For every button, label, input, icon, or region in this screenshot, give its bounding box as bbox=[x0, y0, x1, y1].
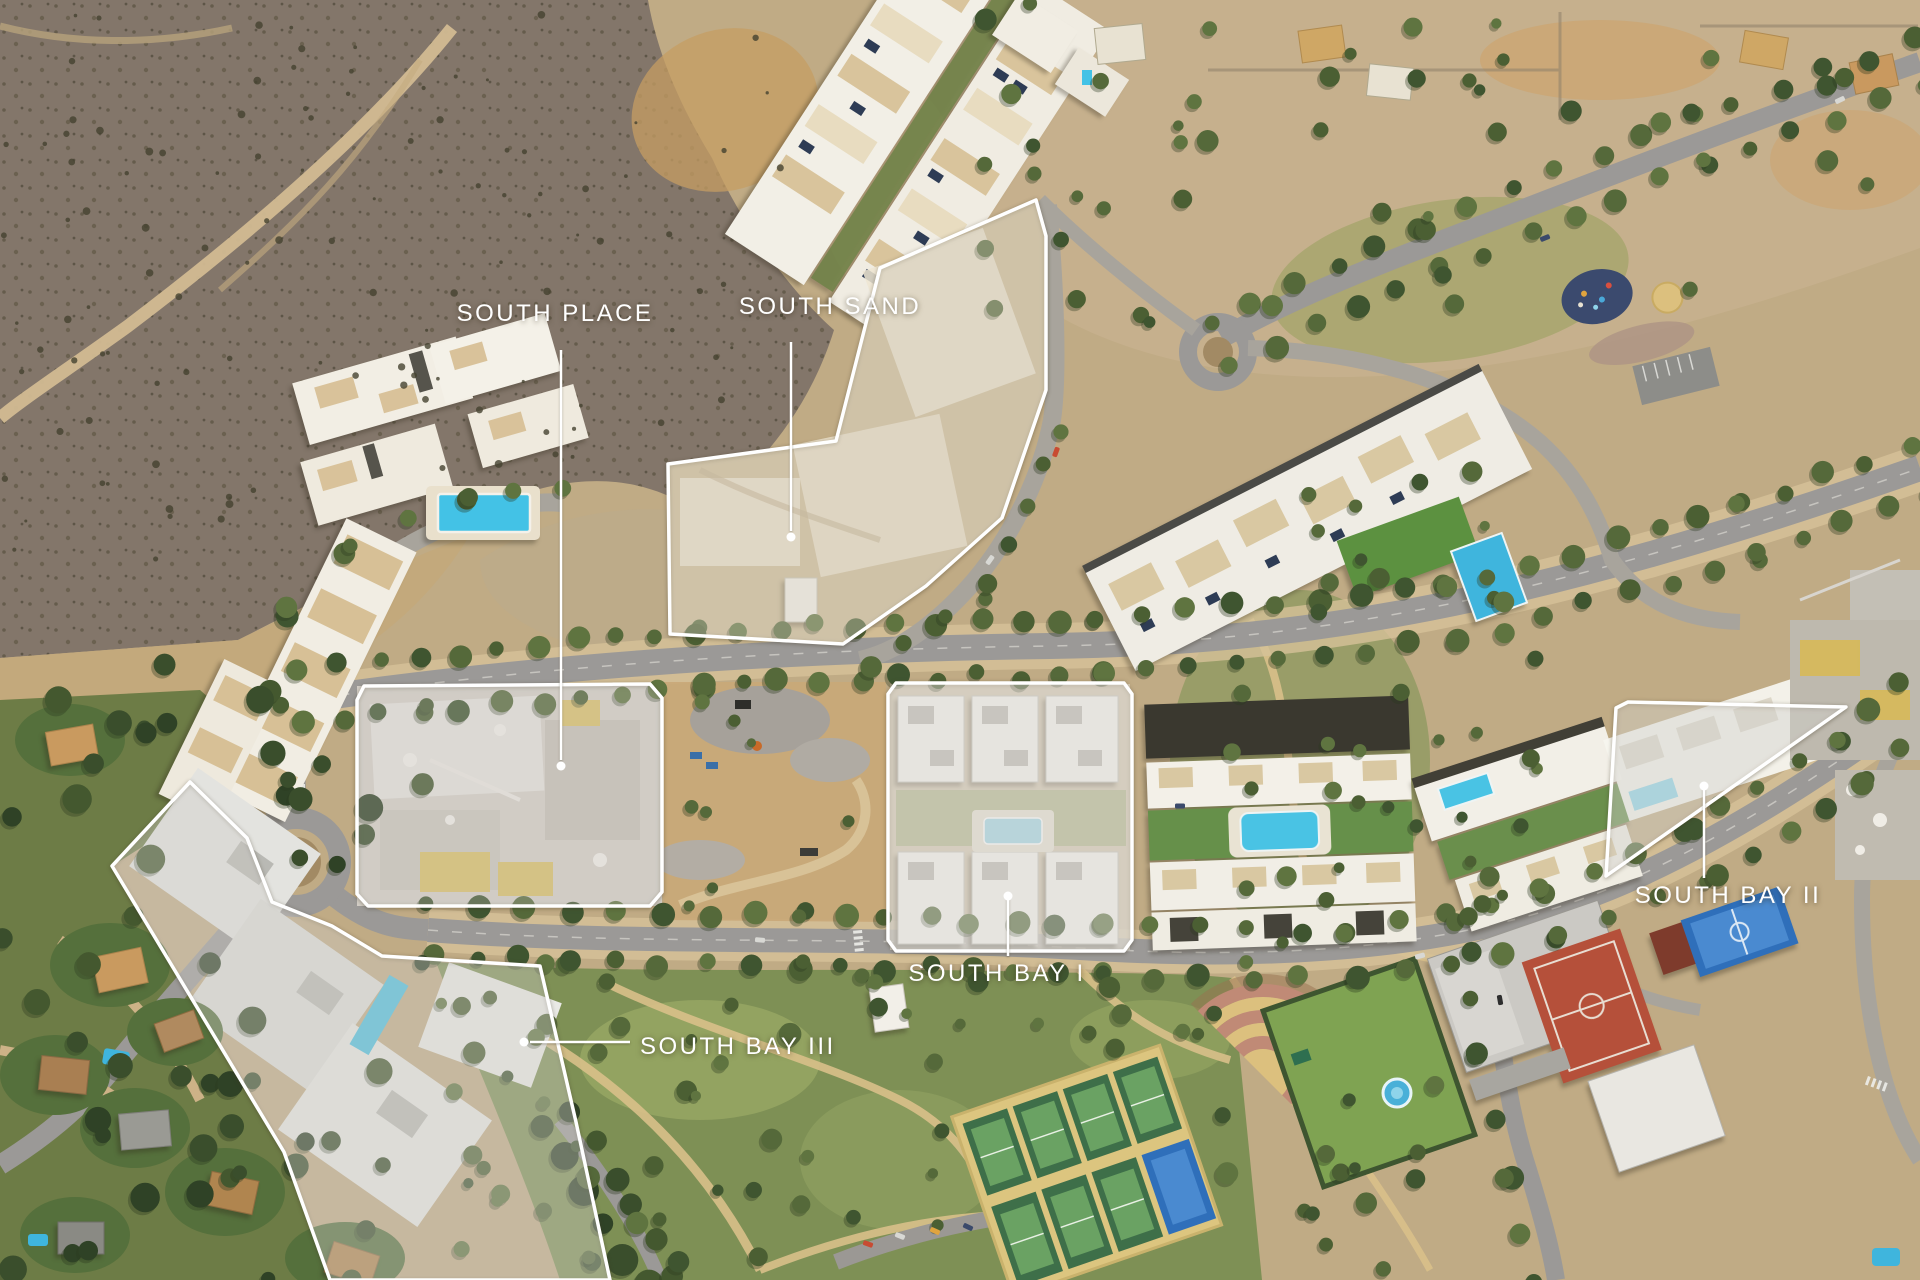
tree bbox=[1013, 611, 1034, 632]
tree bbox=[280, 772, 296, 788]
tree bbox=[1462, 73, 1476, 87]
tree bbox=[276, 597, 297, 618]
tree bbox=[1187, 964, 1210, 987]
shrub bbox=[522, 149, 527, 154]
tree bbox=[528, 636, 550, 658]
tree bbox=[1463, 991, 1479, 1007]
tree bbox=[1082, 1026, 1097, 1041]
shrub bbox=[63, 131, 69, 137]
tree bbox=[1266, 596, 1284, 614]
tree bbox=[1665, 576, 1682, 593]
tree bbox=[928, 1168, 938, 1178]
tree bbox=[83, 753, 104, 774]
tree bbox=[374, 652, 389, 667]
tree bbox=[1493, 591, 1514, 612]
tree bbox=[1403, 18, 1422, 37]
tree bbox=[1175, 1024, 1190, 1039]
tree bbox=[646, 955, 668, 977]
tree bbox=[292, 850, 309, 867]
tree bbox=[1395, 577, 1415, 597]
tree bbox=[645, 1156, 664, 1175]
shrub bbox=[721, 148, 726, 153]
tree bbox=[901, 1008, 912, 1019]
shrub bbox=[571, 455, 575, 459]
tree bbox=[1835, 68, 1854, 87]
tree bbox=[1410, 1144, 1426, 1160]
tree bbox=[171, 1065, 192, 1086]
shrub bbox=[486, 78, 489, 81]
tree bbox=[1048, 610, 1072, 634]
tree bbox=[1223, 743, 1241, 761]
shrub bbox=[289, 26, 293, 30]
tree bbox=[587, 1130, 607, 1150]
tree bbox=[1262, 295, 1283, 316]
tree bbox=[1507, 180, 1522, 195]
tree bbox=[792, 1195, 810, 1213]
swimming-pool bbox=[1872, 1248, 1900, 1266]
tree bbox=[1782, 821, 1801, 840]
shrub bbox=[56, 428, 63, 435]
tree bbox=[62, 784, 92, 814]
shrub bbox=[202, 245, 209, 252]
tree bbox=[972, 608, 993, 629]
tree bbox=[1202, 21, 1217, 36]
tree bbox=[1301, 487, 1316, 502]
tree bbox=[24, 989, 50, 1015]
tree bbox=[835, 904, 859, 928]
shrub bbox=[697, 288, 703, 294]
shrub bbox=[582, 185, 589, 192]
tree bbox=[1829, 732, 1846, 749]
tree bbox=[1192, 917, 1208, 933]
leader-dot bbox=[557, 762, 566, 771]
shrub bbox=[71, 357, 77, 363]
shrub bbox=[713, 354, 719, 360]
tree bbox=[1265, 336, 1289, 360]
shrub bbox=[253, 77, 261, 85]
shrub bbox=[718, 396, 725, 403]
tree bbox=[1549, 926, 1568, 945]
tree bbox=[1311, 604, 1328, 621]
tree bbox=[1510, 1224, 1531, 1245]
tree bbox=[1486, 1110, 1506, 1130]
tree bbox=[1343, 1093, 1356, 1106]
shrub bbox=[37, 346, 43, 352]
shrub bbox=[3, 142, 8, 147]
shrub bbox=[226, 494, 232, 500]
tree bbox=[608, 627, 624, 643]
shrub bbox=[538, 11, 546, 19]
tree bbox=[1053, 424, 1068, 439]
tree bbox=[1728, 495, 1745, 512]
tree bbox=[1574, 592, 1591, 609]
tree bbox=[895, 635, 911, 651]
tree bbox=[1192, 1028, 1204, 1040]
tree bbox=[1601, 910, 1616, 925]
shrub bbox=[572, 427, 576, 431]
car bbox=[1175, 804, 1185, 809]
tree bbox=[560, 950, 581, 971]
tree bbox=[1434, 266, 1451, 283]
tree bbox=[1792, 753, 1807, 768]
shrub bbox=[369, 289, 376, 296]
tree bbox=[1144, 969, 1165, 990]
tree bbox=[1747, 543, 1766, 562]
tree bbox=[1513, 818, 1528, 833]
shrub bbox=[227, 356, 233, 362]
aerial-site-plan: SOUTH PLACESOUTH SANDSOUTH BAY ISOUTH BA… bbox=[0, 0, 1920, 1280]
shrub bbox=[425, 329, 428, 332]
shrub bbox=[576, 233, 579, 236]
tree bbox=[1856, 456, 1873, 473]
tree bbox=[1705, 561, 1725, 581]
shrub bbox=[255, 153, 261, 159]
tree bbox=[1743, 142, 1757, 156]
shrub bbox=[450, 289, 458, 297]
tree bbox=[1426, 1076, 1445, 1095]
shrub bbox=[74, 14, 78, 18]
tree bbox=[741, 955, 763, 977]
tree bbox=[77, 952, 101, 976]
tree bbox=[95, 1127, 111, 1143]
tree bbox=[1355, 553, 1367, 565]
shrub bbox=[308, 115, 314, 121]
tree bbox=[700, 906, 722, 928]
tree bbox=[1620, 579, 1641, 600]
tree bbox=[846, 1210, 861, 1225]
tree bbox=[1827, 111, 1846, 130]
tree bbox=[1215, 1107, 1231, 1123]
shrub bbox=[634, 121, 637, 124]
tree bbox=[1288, 965, 1308, 985]
shrub bbox=[730, 346, 733, 349]
tree bbox=[292, 711, 315, 734]
tree bbox=[1410, 819, 1424, 833]
tree bbox=[693, 673, 716, 696]
tree bbox=[327, 653, 347, 673]
tree bbox=[1408, 70, 1426, 88]
tree bbox=[1020, 498, 1035, 513]
shrub bbox=[83, 207, 91, 215]
tree bbox=[1111, 1004, 1131, 1024]
tree bbox=[1319, 1238, 1333, 1252]
parcel-label-south-sand: SOUTH SAND bbox=[739, 293, 921, 320]
shrub bbox=[275, 236, 283, 244]
tree bbox=[1205, 316, 1220, 331]
shrub bbox=[166, 505, 174, 513]
tree bbox=[652, 903, 676, 927]
shrub bbox=[96, 127, 104, 135]
tree bbox=[1476, 248, 1492, 264]
tree bbox=[1878, 496, 1899, 517]
tree bbox=[1396, 959, 1415, 978]
tree bbox=[186, 1180, 213, 1207]
tree bbox=[975, 9, 997, 31]
tree bbox=[400, 510, 417, 527]
shrub bbox=[476, 406, 483, 413]
shrub bbox=[438, 169, 442, 173]
tree bbox=[1324, 782, 1342, 800]
tree bbox=[1311, 524, 1325, 538]
parcel-label-south-bay-1: SOUTH BAY I bbox=[908, 960, 1085, 987]
orange-dirt-ne1 bbox=[1480, 20, 1720, 100]
tree bbox=[1173, 190, 1192, 209]
tree bbox=[1134, 606, 1150, 622]
tree bbox=[1497, 890, 1508, 901]
tree bbox=[1187, 94, 1202, 109]
tree bbox=[1811, 461, 1833, 483]
shrub bbox=[543, 288, 551, 296]
tree bbox=[860, 656, 882, 678]
tree bbox=[747, 738, 756, 747]
tree bbox=[1245, 971, 1262, 988]
tree bbox=[886, 614, 904, 632]
tree bbox=[329, 856, 346, 873]
tree bbox=[1097, 201, 1111, 215]
tree bbox=[246, 686, 274, 714]
shrub bbox=[1, 232, 7, 238]
shrub bbox=[64, 316, 72, 324]
tree bbox=[1239, 880, 1255, 896]
tree bbox=[1363, 235, 1385, 257]
tree bbox=[1283, 272, 1305, 294]
tree bbox=[460, 488, 478, 506]
tree bbox=[289, 787, 313, 811]
tree bbox=[1561, 100, 1582, 121]
tree bbox=[1387, 280, 1405, 298]
shrub bbox=[454, 75, 458, 79]
parcel-label-south-bay-3: SOUTH BAY III bbox=[640, 1033, 836, 1060]
tree bbox=[1495, 1169, 1514, 1188]
tree bbox=[1315, 646, 1334, 665]
tree bbox=[1372, 203, 1391, 222]
shrub bbox=[15, 321, 18, 324]
tree bbox=[108, 1053, 133, 1078]
tree bbox=[1390, 910, 1409, 929]
tree bbox=[1026, 139, 1040, 153]
shrub bbox=[353, 45, 357, 49]
tree bbox=[1889, 672, 1909, 692]
tree bbox=[1239, 293, 1261, 315]
tree bbox=[1446, 629, 1470, 653]
tree bbox=[1221, 592, 1244, 615]
tree bbox=[1796, 531, 1811, 546]
tree bbox=[1465, 856, 1477, 868]
tree bbox=[1239, 955, 1253, 969]
tree bbox=[808, 672, 829, 693]
tree bbox=[1686, 505, 1709, 528]
tree bbox=[707, 882, 718, 893]
tree bbox=[1321, 737, 1335, 751]
tree bbox=[1562, 545, 1586, 569]
shrub bbox=[552, 451, 558, 457]
tree bbox=[801, 1150, 814, 1163]
tree bbox=[1813, 58, 1832, 77]
tree bbox=[1467, 1049, 1483, 1065]
tree bbox=[1860, 177, 1874, 191]
tree bbox=[1174, 135, 1188, 149]
tree bbox=[1347, 295, 1370, 318]
tree bbox=[1459, 907, 1477, 925]
tree bbox=[1229, 655, 1244, 670]
tree bbox=[554, 480, 571, 497]
tree bbox=[1423, 211, 1434, 222]
shrub bbox=[499, 260, 503, 264]
tree bbox=[136, 722, 157, 743]
tree bbox=[260, 741, 285, 766]
leader-dot bbox=[1004, 892, 1013, 901]
shrub bbox=[777, 164, 784, 171]
tree bbox=[1397, 630, 1420, 653]
tree bbox=[1138, 660, 1154, 676]
tree bbox=[1520, 555, 1540, 575]
tree bbox=[1595, 146, 1614, 165]
tree bbox=[1313, 122, 1328, 137]
shrub bbox=[125, 171, 129, 175]
shrub bbox=[666, 231, 672, 237]
tree bbox=[1830, 510, 1852, 532]
tree bbox=[1462, 461, 1483, 482]
swimming-pool bbox=[1240, 811, 1319, 852]
tree bbox=[1522, 749, 1540, 767]
tree bbox=[1851, 772, 1874, 795]
tree bbox=[1527, 651, 1543, 667]
tree bbox=[1474, 895, 1492, 913]
tree bbox=[1495, 623, 1515, 643]
tree bbox=[700, 806, 712, 818]
shrub bbox=[527, 213, 531, 217]
shrub bbox=[145, 148, 153, 156]
tree bbox=[1856, 698, 1880, 722]
park-lawn1 bbox=[580, 1000, 820, 1120]
leader-dot bbox=[520, 1038, 529, 1047]
tree bbox=[505, 483, 521, 499]
tree bbox=[606, 1168, 630, 1192]
tree bbox=[695, 694, 710, 709]
shrub bbox=[86, 417, 93, 424]
tree bbox=[1106, 1039, 1125, 1058]
tree bbox=[1781, 121, 1799, 139]
shrub bbox=[422, 396, 429, 403]
tree bbox=[1092, 73, 1108, 89]
tree bbox=[1173, 120, 1184, 131]
tree bbox=[869, 998, 888, 1017]
shrub bbox=[439, 465, 445, 471]
shrub bbox=[303, 106, 308, 111]
tree bbox=[412, 648, 432, 668]
tree bbox=[1216, 1162, 1238, 1184]
tree bbox=[761, 1129, 782, 1150]
shrub bbox=[68, 159, 75, 166]
parcel-south-bay-1[interactable]: SOUTH BAY I bbox=[888, 683, 1132, 987]
shrub bbox=[505, 148, 510, 153]
tree bbox=[868, 974, 883, 989]
shrub bbox=[543, 429, 549, 435]
tree bbox=[1068, 290, 1086, 308]
shrub bbox=[411, 373, 417, 379]
shrub bbox=[251, 487, 257, 493]
tree bbox=[668, 1251, 689, 1272]
shrub bbox=[298, 45, 305, 52]
tree bbox=[1457, 197, 1477, 217]
tree bbox=[1774, 80, 1794, 100]
shrub bbox=[153, 556, 158, 561]
tree bbox=[1174, 597, 1194, 617]
tree bbox=[1586, 863, 1603, 880]
tree bbox=[1271, 651, 1286, 666]
tree bbox=[1891, 739, 1910, 758]
tree bbox=[1277, 866, 1297, 886]
leader-dot bbox=[1700, 782, 1709, 791]
tree bbox=[45, 686, 72, 713]
tree bbox=[607, 951, 625, 969]
tree bbox=[313, 755, 331, 773]
tree bbox=[955, 1019, 966, 1030]
tree bbox=[1053, 232, 1069, 248]
tree bbox=[1353, 744, 1366, 757]
tree bbox=[1293, 924, 1312, 943]
shrub bbox=[238, 111, 246, 119]
tree bbox=[1479, 569, 1495, 585]
tree bbox=[712, 1185, 723, 1196]
tree bbox=[728, 714, 740, 726]
tree bbox=[1437, 576, 1458, 597]
shrub bbox=[100, 351, 105, 356]
tree bbox=[1392, 684, 1409, 701]
tree bbox=[1491, 942, 1514, 965]
tree bbox=[926, 1053, 943, 1070]
tree bbox=[1696, 152, 1711, 167]
tree bbox=[843, 815, 855, 827]
tree bbox=[286, 659, 307, 680]
shrub bbox=[291, 65, 296, 70]
tree bbox=[1320, 67, 1340, 87]
tree bbox=[1071, 190, 1083, 202]
tree bbox=[78, 1241, 98, 1261]
tree bbox=[1144, 316, 1156, 328]
tree bbox=[626, 1212, 648, 1234]
tree bbox=[691, 1091, 701, 1101]
tree bbox=[1317, 1145, 1335, 1163]
shrub bbox=[167, 514, 172, 519]
shrub bbox=[2, 476, 8, 482]
shrub bbox=[264, 218, 269, 223]
tree bbox=[1358, 645, 1375, 662]
shrub bbox=[597, 238, 604, 245]
tree bbox=[1778, 486, 1794, 502]
shrub bbox=[146, 269, 154, 277]
aerial-photo: SOUTH PLACESOUTH SANDSOUTH BAY ISOUTH BA… bbox=[0, 0, 1920, 1280]
tree bbox=[1443, 956, 1460, 973]
shrub bbox=[245, 261, 249, 265]
shrub bbox=[436, 116, 443, 123]
tree bbox=[1141, 916, 1158, 933]
tree bbox=[590, 1044, 608, 1062]
tree bbox=[1308, 314, 1326, 332]
shrub bbox=[373, 197, 376, 200]
tree bbox=[1206, 1006, 1222, 1022]
tree bbox=[335, 710, 354, 729]
tree bbox=[1352, 795, 1366, 809]
tree bbox=[1474, 84, 1485, 95]
shrub bbox=[538, 192, 542, 196]
shrub bbox=[142, 224, 150, 232]
swimming-pool bbox=[28, 1234, 48, 1246]
tree bbox=[1567, 206, 1587, 226]
tree bbox=[978, 574, 997, 593]
shrub bbox=[42, 142, 47, 147]
tree bbox=[1815, 798, 1837, 820]
